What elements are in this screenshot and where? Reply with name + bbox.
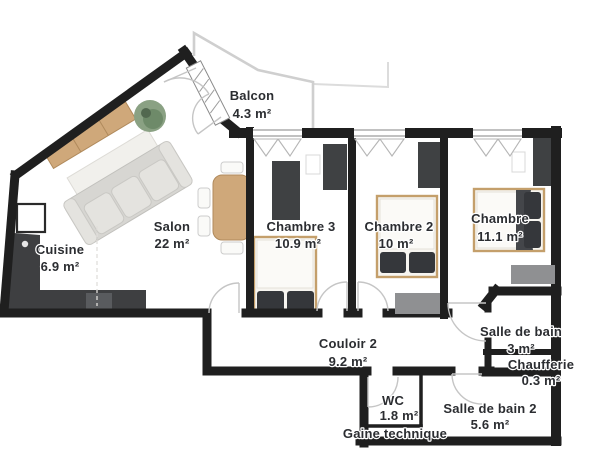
room-area-cuisine: 6.9 m² (41, 259, 80, 274)
chair (198, 188, 210, 208)
hob (86, 293, 112, 309)
room-area-salon: 22 m² (155, 236, 190, 251)
room-area-salle-de-bain-2: 5.6 m² (471, 417, 510, 432)
room-label-chambre: Chambre (471, 211, 529, 226)
room-area-chaufferie: 0.3 m² (522, 373, 561, 388)
wardrobe (323, 144, 347, 190)
dresser (395, 293, 440, 314)
room-area-chambre: 11.1 m² (477, 229, 523, 244)
desk (306, 155, 320, 174)
room-area-chambre3: 10.9 m² (275, 236, 322, 251)
dresser (511, 265, 555, 284)
floorplan-drawing: Balcon 4.3 m² Salon 22 m² Cuisine 6.9 m²… (0, 0, 600, 450)
wardrobe (418, 142, 440, 188)
room-area-couloir2: 9.2 m² (329, 354, 368, 369)
chair (221, 162, 243, 173)
nightstand (512, 152, 525, 172)
room-label-couloir2: Couloir 2 (319, 336, 377, 351)
room-label-chambre3: Chambre 3 (267, 219, 336, 234)
plant (134, 100, 166, 132)
bed-pillow (380, 252, 406, 273)
bed-pillow (287, 291, 314, 311)
bed-pillow (409, 252, 435, 273)
wardrobe (272, 161, 300, 220)
room-area-chambre2: 10 m² (379, 236, 414, 251)
room-area-wc: 1.8 m² (380, 408, 419, 423)
chair (221, 242, 243, 254)
room-label-salle-de-bain-2: Salle de bain 2 (443, 401, 536, 416)
room-label-cuisine: Cuisine (36, 242, 84, 257)
room-label-salon: Salon (154, 219, 190, 234)
sink (22, 241, 28, 247)
room-label-balcon: Balcon (230, 88, 275, 103)
room-area-salle-de-bain: 3 m² (507, 341, 535, 356)
room-area-balcon: 4.3 m² (233, 106, 272, 121)
room-label-gaine-technique: Gaine technique (343, 426, 447, 441)
tall-cabinet (17, 204, 45, 232)
chair (198, 216, 210, 236)
bed-pillow (257, 291, 284, 311)
room-label-wc: WC (382, 393, 404, 408)
room-label-chambre2: Chambre 2 (365, 219, 434, 234)
room-label-chaufferie: Chaufferie (508, 357, 574, 372)
room-label-salle-de-bain: Salle de bain (480, 324, 562, 339)
floorplan-page: Balcon 4.3 m² Salon 22 m² Cuisine 6.9 m²… (0, 0, 600, 450)
